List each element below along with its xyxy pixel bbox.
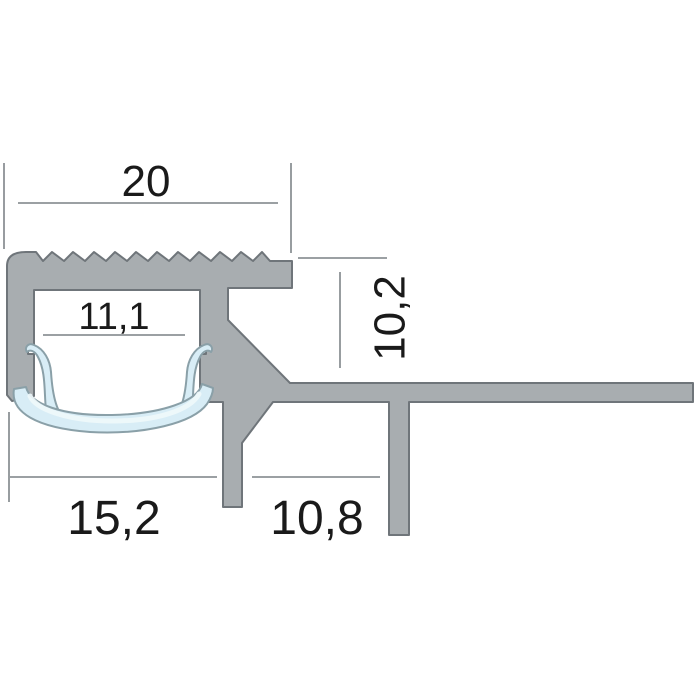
profile-drawing: 20 11,1 10,2 15,2 10,8 bbox=[0, 0, 700, 700]
label-channel-width: 11,1 bbox=[78, 296, 149, 338]
diagram-canvas: 20 11,1 10,2 15,2 10,8 bbox=[0, 0, 700, 700]
label-bottom-left-width: 15,2 bbox=[67, 492, 160, 545]
label-bottom-right-width: 10,8 bbox=[270, 492, 363, 545]
label-top-width: 20 bbox=[122, 157, 171, 206]
diffuser-insert bbox=[14, 344, 213, 432]
label-right-height: 10,2 bbox=[366, 275, 415, 361]
dimension-lines bbox=[4, 163, 387, 502]
